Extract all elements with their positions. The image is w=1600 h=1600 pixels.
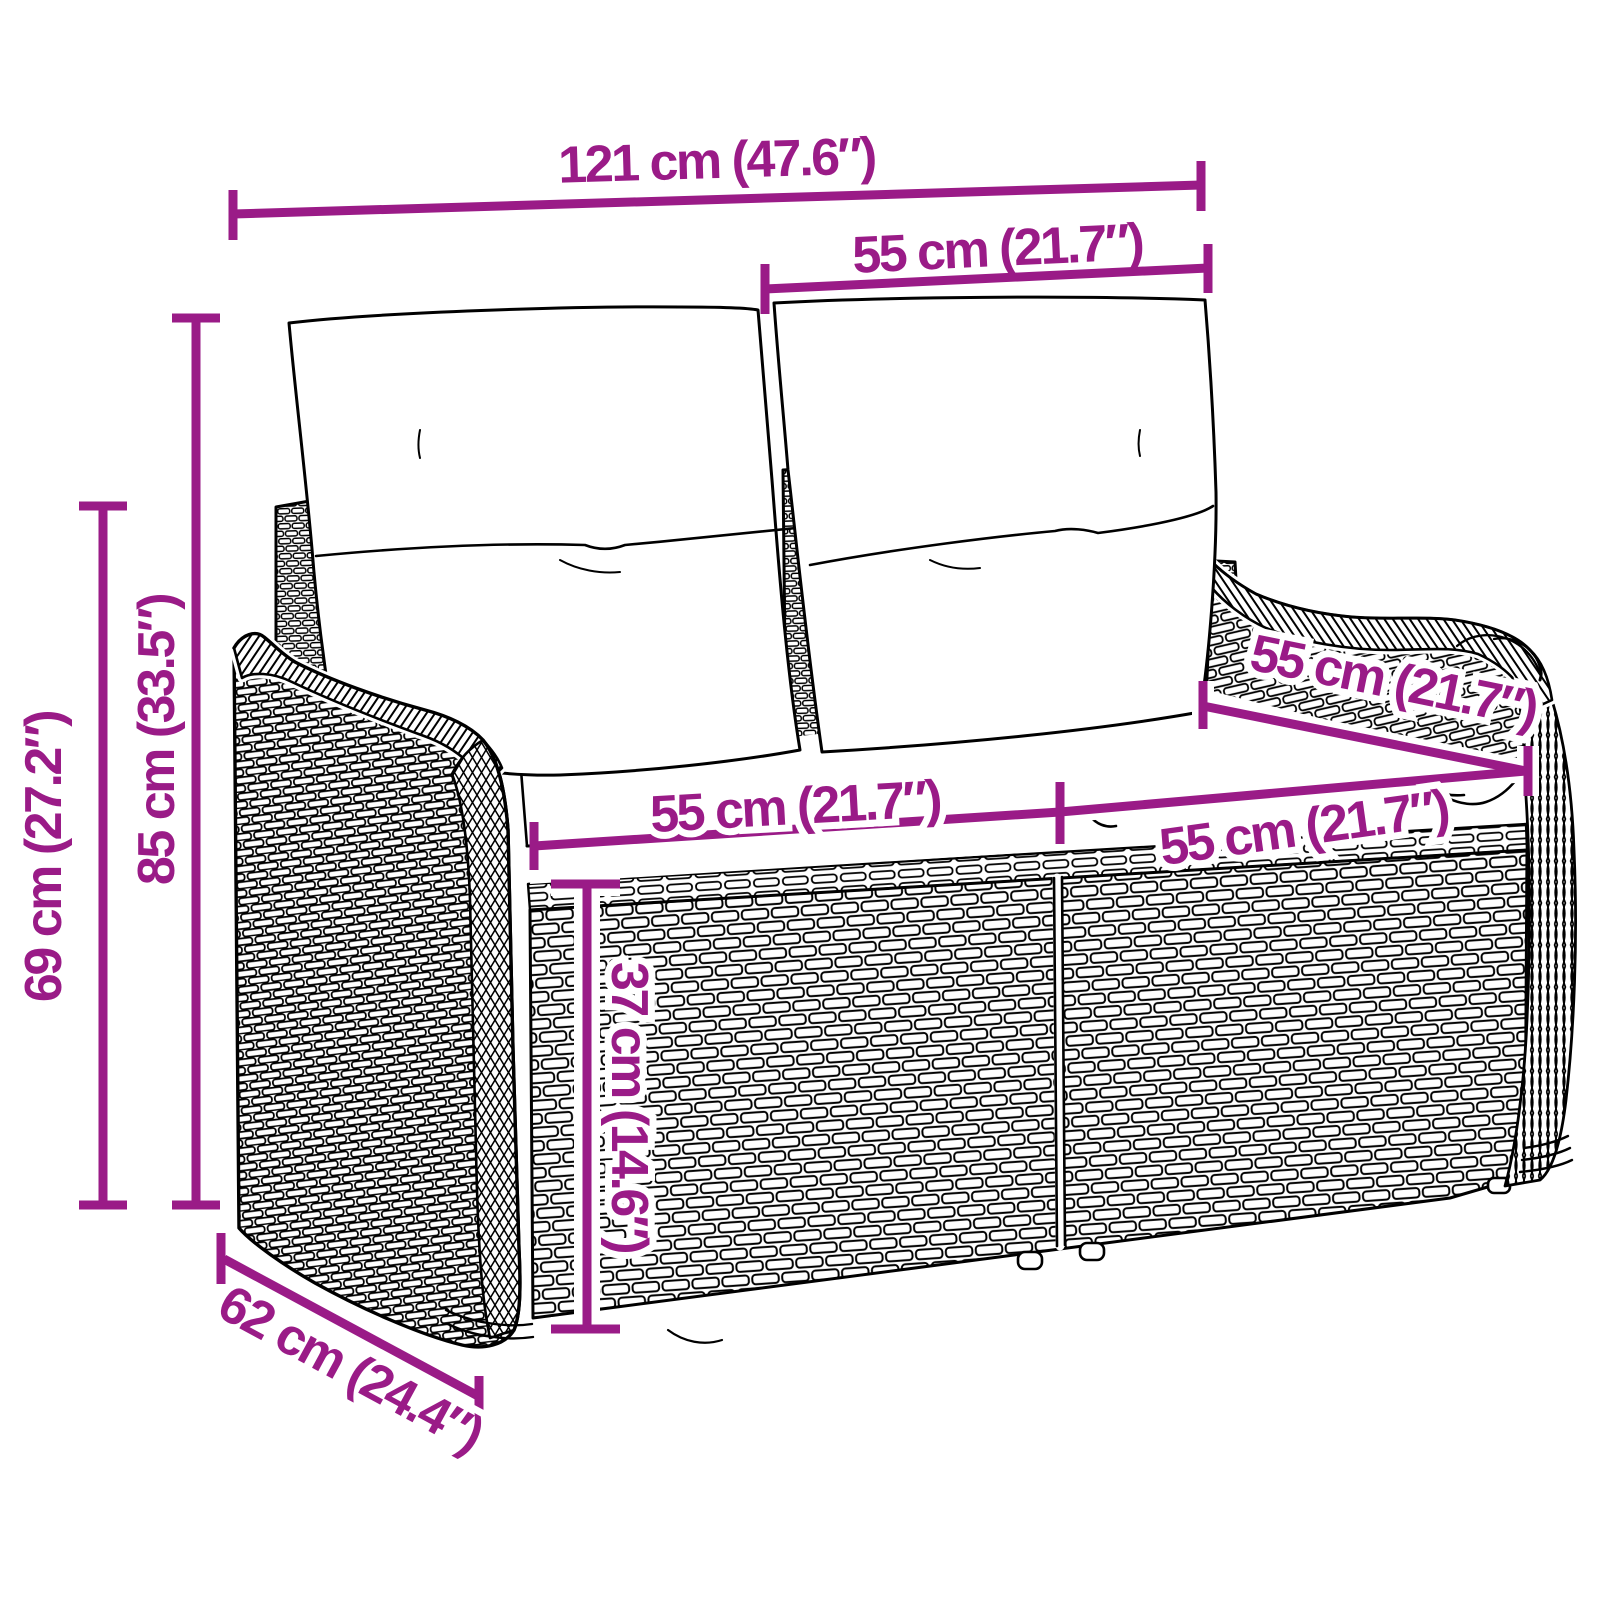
svg-text:121 cm (47.6″): 121 cm (47.6″) [557,127,875,194]
svg-text:85 cm (33.5″): 85 cm (33.5″) [128,595,186,885]
svg-text:37 cm (14.6″): 37 cm (14.6″) [600,962,658,1252]
svg-text:69 cm (27.2″): 69 cm (27.2″) [15,712,73,1002]
